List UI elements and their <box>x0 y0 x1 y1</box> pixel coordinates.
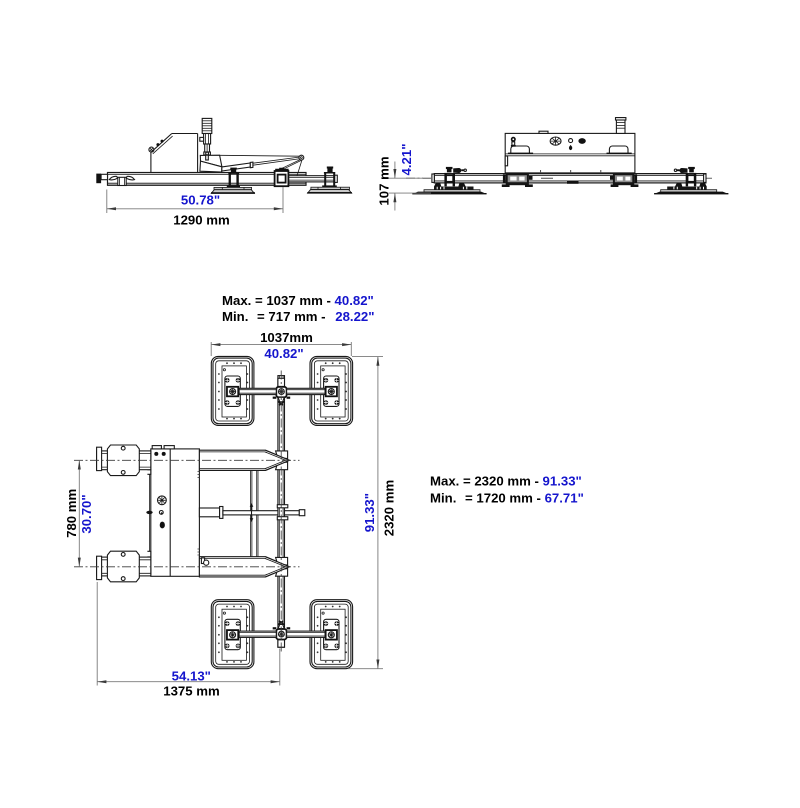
svg-text:Max. = 2320 mm - 91.33": Max. = 2320 mm - 91.33" <box>430 474 582 489</box>
svg-text:50.78": 50.78" <box>181 193 220 208</box>
svg-text:4.21": 4.21" <box>399 144 414 176</box>
svg-text:40.82": 40.82" <box>264 346 303 361</box>
svg-text:30.70": 30.70" <box>79 494 94 533</box>
svg-text:1290 mm: 1290 mm <box>173 213 229 228</box>
svg-text:780 mm: 780 mm <box>64 489 79 538</box>
svg-text:91.33": 91.33" <box>362 493 377 532</box>
svg-text:1375 mm: 1375 mm <box>163 684 219 699</box>
svg-text:Min. = 1720 mm - 67.71": Min. = 1720 mm - 67.71" <box>430 491 584 506</box>
svg-text:Min. = 717 mm - 28.22": Min. = 717 mm - 28.22" <box>222 309 375 324</box>
svg-text:54.13": 54.13" <box>172 669 211 684</box>
svg-text:Max. = 1037 mm - 40.82": Max. = 1037 mm - 40.82" <box>222 293 374 308</box>
svg-text:107 mm: 107 mm <box>377 156 392 205</box>
svg-text:2320 mm: 2320 mm <box>382 480 397 536</box>
svg-text:1037mm: 1037mm <box>260 330 313 345</box>
